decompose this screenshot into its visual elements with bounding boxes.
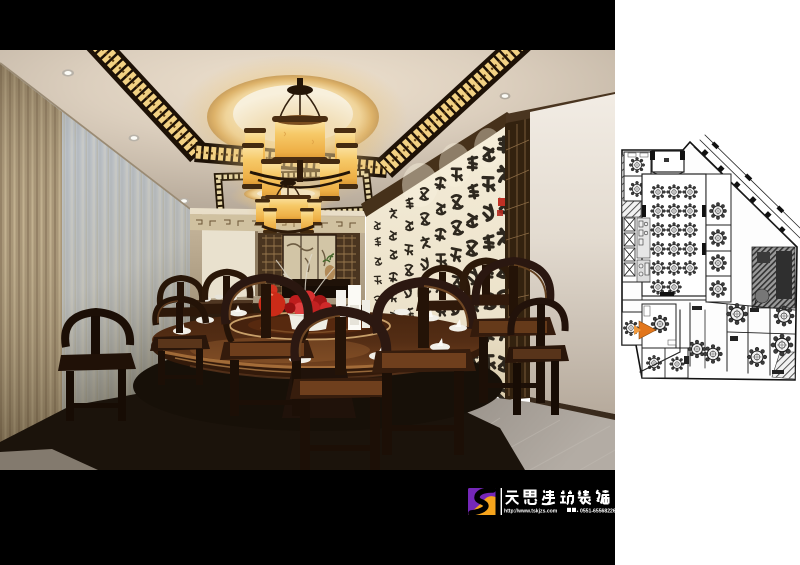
svg-text:http://www.tskjzs.com: http://www.tskjzs.com <box>504 508 558 514</box>
svg-text:0551-65568226: 0551-65568226 <box>580 508 616 514</box>
